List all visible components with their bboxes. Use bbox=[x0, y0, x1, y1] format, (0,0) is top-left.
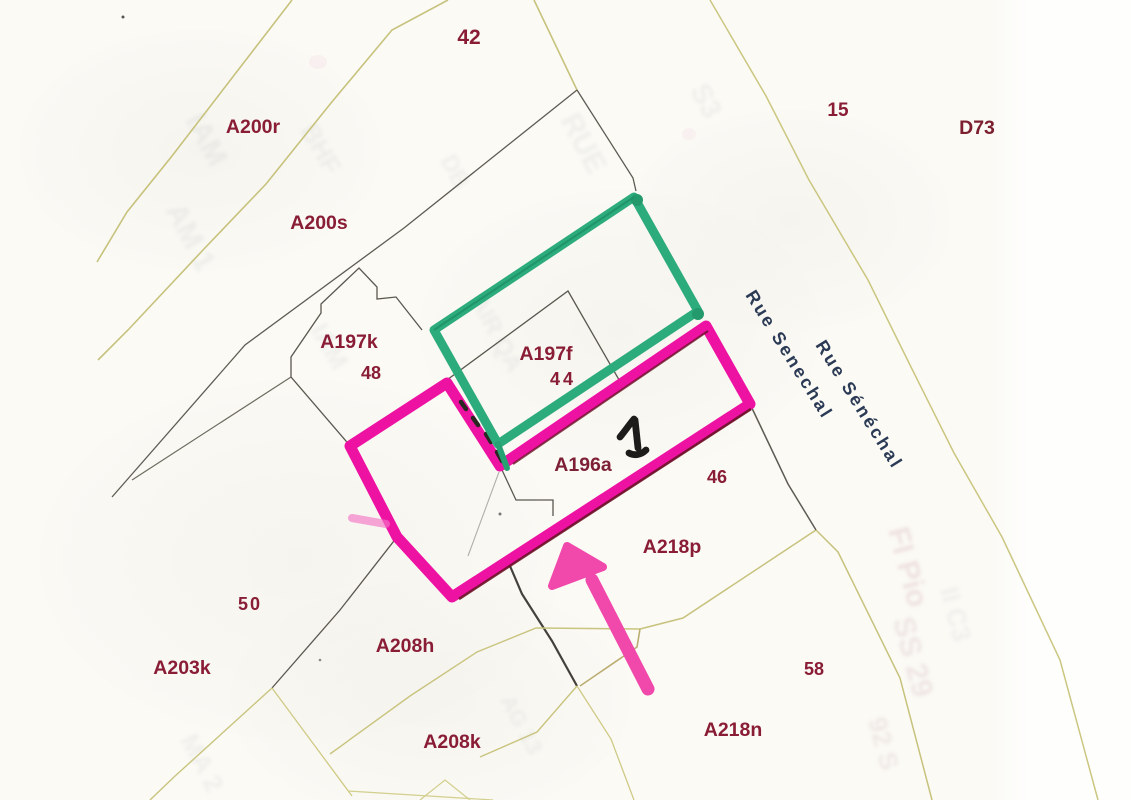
svg-text:50: 50 bbox=[238, 594, 262, 614]
svg-text:D73: D73 bbox=[959, 117, 995, 139]
svg-text:A200r: A200r bbox=[226, 116, 281, 138]
svg-text:48: 48 bbox=[361, 363, 381, 383]
svg-text:42: 42 bbox=[457, 26, 480, 49]
svg-text:15: 15 bbox=[827, 100, 849, 121]
svg-text:46: 46 bbox=[707, 467, 727, 487]
svg-text:44: 44 bbox=[550, 369, 576, 389]
svg-text:A196a: A196a bbox=[554, 454, 612, 476]
svg-text:A218p: A218p bbox=[643, 536, 702, 558]
svg-text:A200s: A200s bbox=[290, 212, 348, 234]
svg-text:A208h: A208h bbox=[376, 635, 435, 657]
svg-text:A197f: A197f bbox=[519, 343, 573, 365]
svg-text:A208k: A208k bbox=[423, 731, 481, 753]
svg-text:A203k: A203k bbox=[153, 657, 211, 679]
svg-text:58: 58 bbox=[804, 659, 824, 679]
svg-text:A197k: A197k bbox=[320, 331, 378, 353]
svg-text:A218n: A218n bbox=[704, 719, 763, 741]
